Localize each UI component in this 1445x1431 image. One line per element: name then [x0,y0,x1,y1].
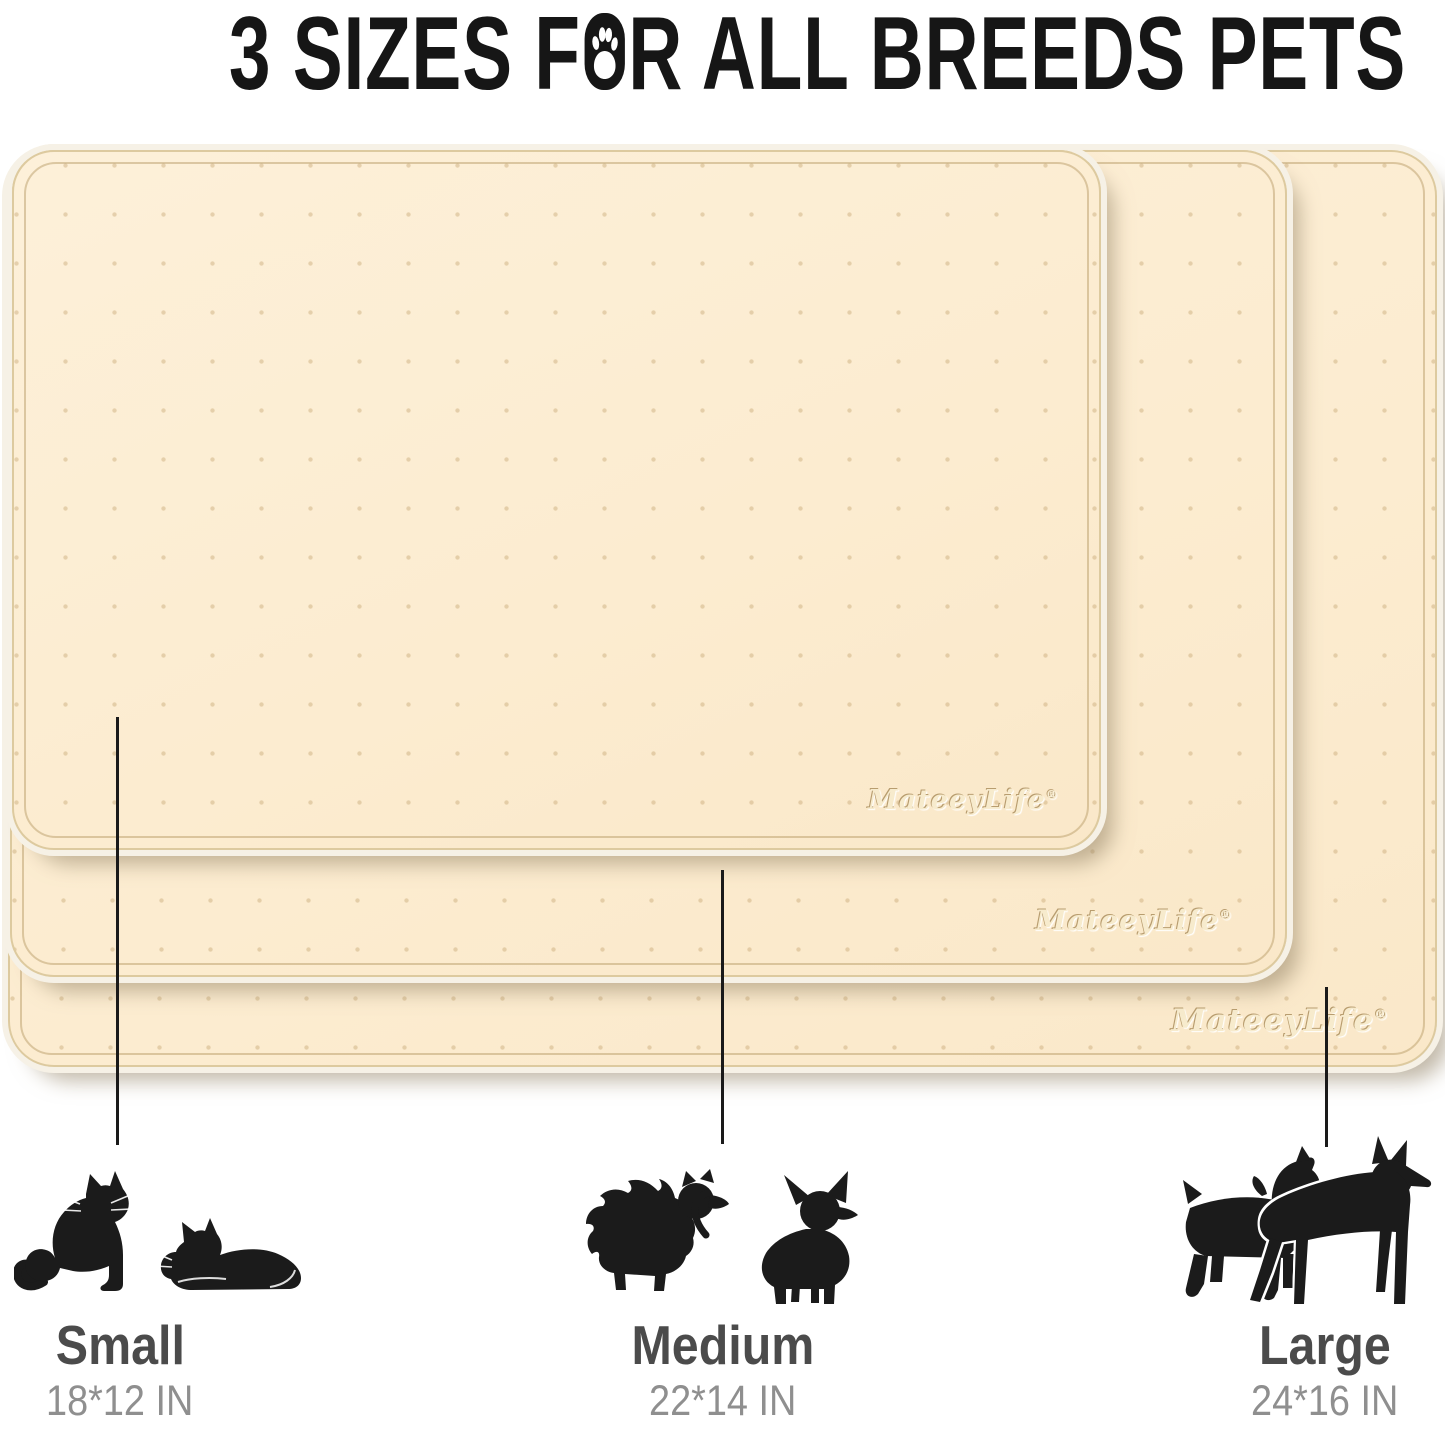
size-label-large: Large [1259,1318,1391,1373]
paw-print-icon [590,22,619,82]
size-group-small: Small 18*12 IN [0,1318,240,1423]
size-dimensions-large: 24*16 IN [1251,1380,1398,1423]
cat-sitting-icon [17,1171,131,1291]
medium-dogs-silhouette-group [578,1163,878,1308]
product-infographic: 3 SIZES F R ALL BREEDS PETS MateeyLife® … [0,0,1445,1431]
size-label-medium: Medium [632,1318,815,1373]
pomeranian-icon [586,1169,729,1291]
leader-line-small [116,717,119,1145]
chihuahua-icon [695,1171,858,1304]
title-text-before: 3 SIZES F [229,0,581,112]
cat-lying-icon [155,1218,301,1290]
page-title-text: 3 SIZES F R ALL BREEDS PETS [229,2,1406,106]
brand-name: MateeyLife [868,785,1046,816]
page-title: 3 SIZES F R ALL BREEDS PETS [0,2,1445,106]
title-text-after: R ALL BREEDS PETS [628,0,1406,112]
brand-name: MateeyLife [1035,904,1219,937]
brand-logo-small-mat: MateeyLife® [868,785,1059,816]
registered-mark: ® [1046,788,1059,802]
brand-name: MateeyLife [1171,1003,1374,1039]
size-group-medium: Medium 22*14 IN [600,1318,846,1423]
size-group-large: Large 24*16 IN [1202,1318,1445,1423]
size-dimensions-medium: 22*14 IN [649,1380,796,1423]
cats-silhouette-group [14,1168,304,1308]
mat-small: MateeyLife® [12,150,1101,850]
size-dimensions-small: 18*12 IN [46,1380,193,1423]
large-dogs-silhouette-group [1150,1130,1440,1320]
leader-line-medium [721,870,724,1144]
leader-line-large [1325,987,1328,1147]
registered-mark: ® [1374,1008,1389,1024]
brand-logo-large-mat: MateeyLife® [1171,1003,1389,1039]
brand-logo-medium-mat: MateeyLife® [1035,904,1233,937]
registered-mark: ® [1219,908,1233,923]
size-label-small: Small [55,1318,184,1373]
paw-in-o-icon [584,13,624,90]
